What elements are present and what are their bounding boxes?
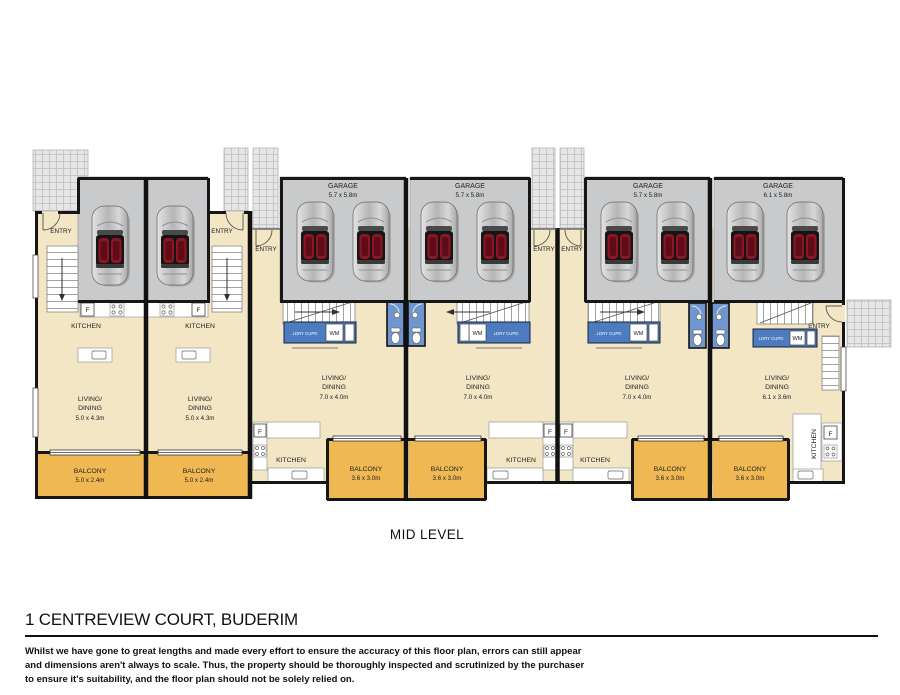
- sink-icon: [493, 471, 508, 479]
- laundry-cupboard-label: LDRY CUPD: [759, 336, 784, 341]
- car-icon: [601, 202, 639, 283]
- basin-icon: [412, 312, 418, 318]
- basin-icon: [394, 312, 400, 318]
- cooktop-icon: [824, 445, 837, 458]
- cooktop-icon: [110, 303, 124, 316]
- garage-dims: 5.7 x 5.8m: [456, 192, 485, 199]
- cooktop-icon: [544, 445, 556, 457]
- window: [841, 347, 846, 391]
- garage-dims: 6.1 x 5.8m: [764, 192, 793, 199]
- car-icon: [92, 206, 130, 287]
- disclaimer-line: Whilst we have gone to great lengths and…: [25, 645, 885, 659]
- garage-label: GARAGE: [328, 183, 358, 190]
- balcony-label: BALCONY: [183, 468, 216, 475]
- garage-dims: 5.7 x 5.8m: [329, 192, 358, 199]
- living-label: DINING: [322, 384, 346, 391]
- balcony-label: BALCONY: [74, 468, 107, 475]
- living-label: LIVING/: [188, 396, 212, 403]
- entry-label: ENTRY: [533, 246, 555, 253]
- laundry-tub: [807, 331, 815, 345]
- living-label: DINING: [625, 384, 649, 391]
- laundry-cupboard-label: LDRY CUPD: [597, 331, 622, 336]
- car-icon: [477, 202, 515, 283]
- washing-machine-label: WM: [330, 331, 340, 337]
- entry-label: ENTRY: [255, 246, 277, 253]
- disclaimer: Whilst we have gone to great lengths and…: [25, 645, 885, 687]
- balcony-label: BALCONY: [431, 466, 464, 473]
- powder-room-unit-6: [712, 303, 729, 348]
- sink-icon: [292, 471, 307, 479]
- balcony-floor-unit-1: [35, 452, 145, 498]
- staircase-unit-6-lower: [822, 336, 839, 390]
- balcony-dims: 3.6 x 3.0m: [656, 475, 685, 482]
- kitchen-label: KITCHEN: [506, 457, 536, 464]
- garage-label: GARAGE: [633, 183, 663, 190]
- living-label: DINING: [78, 405, 102, 412]
- bench: [267, 422, 320, 438]
- living-label: LIVING/: [625, 375, 649, 382]
- paved-path: [253, 148, 278, 228]
- kitchen-label: KITCHEN: [185, 323, 215, 330]
- kitchen-label: KITCHEN: [71, 323, 101, 330]
- laundry-cupboard-label: LDRY CUPD: [494, 331, 519, 336]
- disclaimer-line: to ensure it's suitability, and the floo…: [25, 673, 885, 687]
- living-label: DINING: [188, 405, 212, 412]
- washing-machine-label: WM: [634, 331, 644, 337]
- window: [33, 388, 38, 437]
- living-dims: 6.1 x 3.6m: [763, 394, 792, 401]
- paved-path: [224, 148, 248, 211]
- balcony-dims: 5.0 x 2.4m: [185, 477, 214, 484]
- sink-icon: [182, 351, 196, 359]
- living-label: LIVING/: [765, 375, 789, 382]
- living-dims: 5.0 x 4.3m: [76, 415, 105, 422]
- address-title: 1 CENTREVIEW COURT, BUDERIM: [25, 610, 885, 630]
- fridge-label: F: [548, 429, 552, 436]
- entry-label: ENTRY: [211, 228, 233, 235]
- laundry-tub: [345, 324, 354, 341]
- sink-icon: [798, 471, 813, 479]
- entry-label: ENTRY: [50, 228, 72, 235]
- paved-path: [847, 300, 891, 347]
- entry-label: ENTRY: [808, 323, 830, 330]
- balcony-dims: 5.0 x 2.4m: [76, 477, 105, 484]
- entry-label: ENTRY: [561, 246, 583, 253]
- laundry-tub: [460, 324, 469, 341]
- living-label: LIVING/: [322, 375, 346, 382]
- title-rule: [25, 635, 878, 637]
- bench: [573, 422, 627, 438]
- balcony-dims: 3.6 x 3.0m: [433, 475, 462, 482]
- balcony-dims: 3.6 x 3.0m: [736, 475, 765, 482]
- disclaimer-line: and dimensions aren't always to scale. T…: [25, 659, 885, 673]
- living-label: DINING: [466, 384, 490, 391]
- laundry-tub: [649, 324, 658, 341]
- balcony-floor-unit-2: [148, 452, 250, 498]
- washing-machine-label: WM: [473, 331, 483, 337]
- garage-label: GARAGE: [455, 183, 485, 190]
- kitchen-label: KITCHEN: [276, 457, 306, 464]
- window: [33, 255, 38, 298]
- balcony-dims: 3.6 x 3.0m: [352, 475, 381, 482]
- garage-label: GARAGE: [763, 183, 793, 190]
- living-label: LIVING/: [466, 375, 490, 382]
- bench: [489, 422, 543, 438]
- kitchen-label: KITCHEN: [580, 457, 610, 464]
- cooktop-icon: [160, 303, 174, 316]
- living-dims: 7.0 x 4.0m: [623, 394, 652, 401]
- floor-plan-page: { "plan": { "level_label": "MID LEVEL", …: [0, 0, 900, 695]
- paved-path: [532, 148, 555, 228]
- powder-room-unit-3: [387, 301, 404, 346]
- cooktop-icon: [560, 445, 572, 457]
- toilet-icon: [391, 328, 400, 344]
- paved-path: [560, 148, 584, 228]
- car-icon: [353, 202, 391, 283]
- kitchen-label: KITCHEN: [811, 429, 818, 459]
- living-dims: 7.0 x 4.0m: [464, 394, 493, 401]
- fridge-label: F: [829, 431, 833, 438]
- balcony-label: BALCONY: [350, 466, 383, 473]
- floor-plan: GARAGE 5.7 x 5.8m GARAGE 5.7 x 5.8m GARA…: [0, 0, 900, 560]
- car-icon: [297, 202, 335, 283]
- fridge-label: F: [197, 307, 201, 314]
- footer: 1 CENTREVIEW COURT, BUDERIM Whilst we ha…: [25, 610, 885, 687]
- washing-machine-label: WM: [793, 336, 803, 342]
- fridge-label: F: [86, 307, 90, 314]
- sink-icon: [608, 471, 623, 479]
- fridge-label: F: [258, 429, 262, 436]
- living-dims: 5.0 x 4.3m: [186, 415, 215, 422]
- toilet-icon: [716, 330, 725, 346]
- car-icon: [421, 202, 459, 283]
- car-icon: [657, 202, 695, 283]
- laundry-cupboard-label: LDRY CUPD: [293, 331, 318, 336]
- basin-icon: [696, 314, 702, 320]
- living-label: LIVING/: [78, 396, 102, 403]
- powder-room-unit-5: [689, 303, 706, 348]
- garage-dims: 5.7 x 5.8m: [634, 192, 663, 199]
- floor-plan-canvas: GARAGE 5.7 x 5.8m GARAGE 5.7 x 5.8m GARA…: [0, 0, 900, 560]
- sink-icon: [92, 351, 106, 359]
- toilet-icon: [412, 328, 421, 344]
- balcony-label: BALCONY: [734, 466, 767, 473]
- basin-icon: [716, 314, 722, 320]
- car-icon: [727, 202, 765, 283]
- toilet-icon: [693, 330, 702, 346]
- living-label: DINING: [765, 384, 789, 391]
- car-icon: [787, 202, 825, 283]
- fridge-label: F: [564, 429, 568, 436]
- balcony-label: BALCONY: [654, 466, 687, 473]
- car-icon: [157, 206, 195, 287]
- cooktop-icon: [254, 445, 266, 457]
- powder-room-unit-4: [408, 301, 425, 346]
- level-label: MID LEVEL: [352, 527, 502, 542]
- living-dims: 7.0 x 4.0m: [320, 394, 349, 401]
